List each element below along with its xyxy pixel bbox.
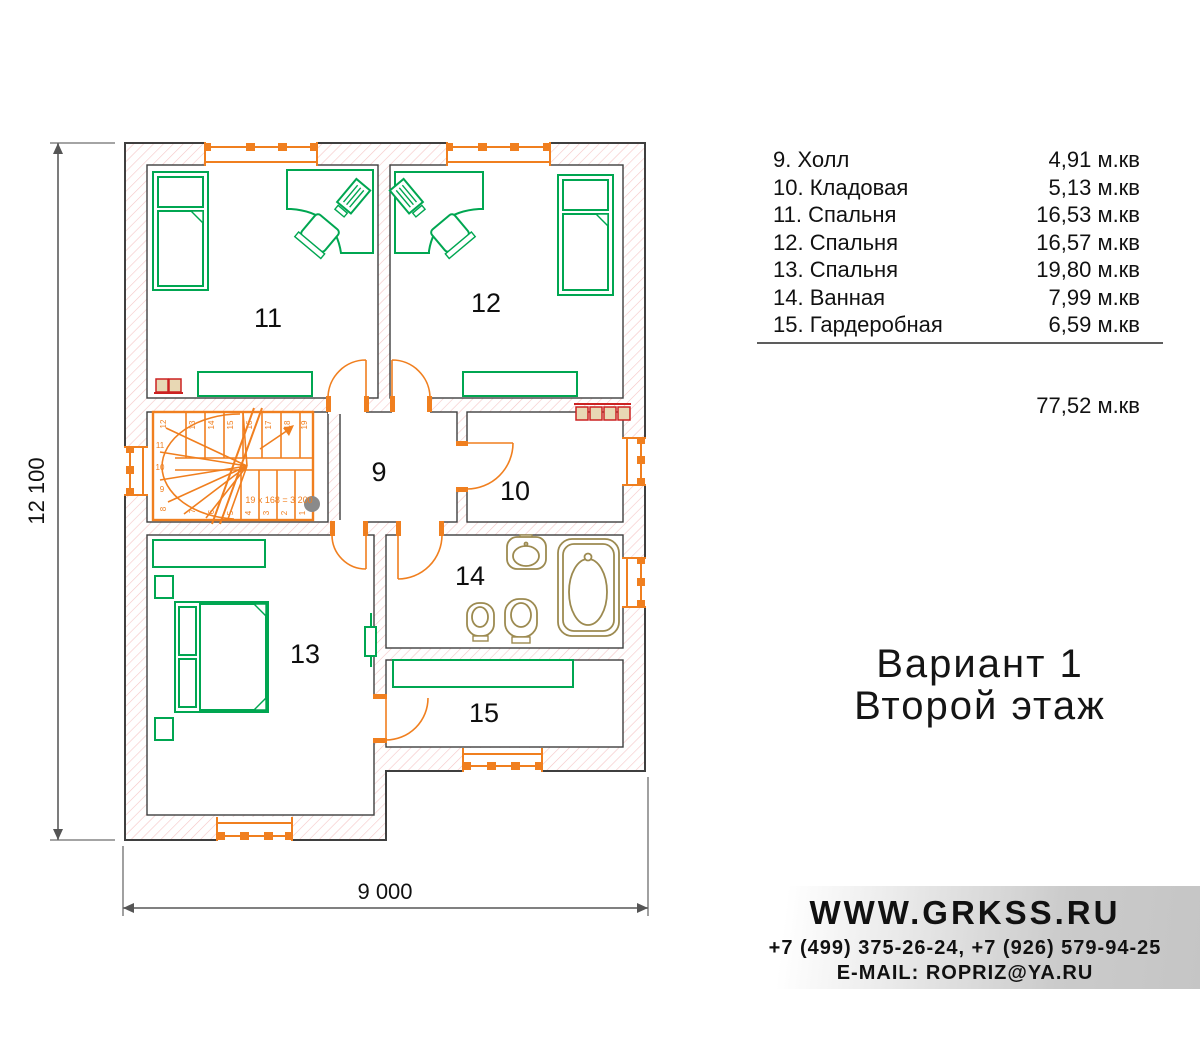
room-label-9: 9 <box>371 457 386 487</box>
room-label-13: 13 <box>290 639 320 669</box>
floor-plan: 19 x 168 = 3 200 1 2 3 4 5 6 7 8 9 10 11… <box>0 0 720 1050</box>
svg-text:8: 8 <box>159 506 168 511</box>
svg-text:14: 14 <box>207 420 216 429</box>
svg-text:17: 17 <box>264 420 273 429</box>
bed-room12 <box>558 175 613 295</box>
svg-text:6: 6 <box>207 509 216 514</box>
window-bottom-room15 <box>462 748 543 772</box>
svg-text:19: 19 <box>300 420 309 429</box>
legend-room-area: 6,59 м.кв <box>1049 311 1140 339</box>
wardrobe-room15 <box>393 660 573 687</box>
room-label-12: 12 <box>471 288 501 318</box>
svg-text:16: 16 <box>245 420 254 429</box>
room-label-14: 14 <box>455 561 485 591</box>
legend-room-area: 16,53 м.кв <box>1036 201 1140 229</box>
nightstand-top <box>155 576 173 598</box>
legend-row: 10. Кладовая5,13 м.кв <box>773 174 1140 202</box>
legend-room-area: 7,99 м.кв <box>1049 284 1140 312</box>
legend-room-name: 11. Спальня <box>773 201 896 229</box>
svg-text:2: 2 <box>280 510 289 515</box>
sink <box>507 535 546 569</box>
room-label-10: 10 <box>500 476 530 506</box>
legend-room-area: 19,80 м.кв <box>1036 256 1140 284</box>
svg-text:4: 4 <box>244 510 253 515</box>
svg-text:5: 5 <box>226 510 235 515</box>
svg-text:7: 7 <box>188 508 197 513</box>
plan-title-line2: Второй этаж <box>755 685 1200 727</box>
room-label-11: 11 <box>254 303 282 333</box>
legend-total-area: 77,52 м.кв <box>773 393 1140 419</box>
radiator-room11 <box>154 379 183 393</box>
email-text: E-MAIL: ROPRIZ@YA.RU <box>837 962 1094 985</box>
svg-text:11: 11 <box>156 441 165 450</box>
website-text: WWW.GRKSS.RU <box>810 894 1121 932</box>
legend-row: 11. Спальня16,53 м.кв <box>773 201 1140 229</box>
svg-text:15: 15 <box>226 420 235 429</box>
legend-room-name: 9. Холл <box>773 146 849 174</box>
svg-text:9: 9 <box>160 485 165 494</box>
legend-room-name: 10. Кладовая <box>773 174 908 202</box>
svg-text:1: 1 <box>298 510 307 515</box>
legend-room-area: 5,13 м.кв <box>1049 174 1140 202</box>
plan-title-line1: Вариант 1 <box>755 643 1200 685</box>
legend-row: 13. Спальня19,80 м.кв <box>773 256 1140 284</box>
legend-row: 14. Ванная7,99 м.кв <box>773 284 1140 312</box>
svg-text:3: 3 <box>262 510 271 515</box>
legend-room-name: 13. Спальня <box>773 256 898 284</box>
legend-room-name: 15. Гардеробная <box>773 311 943 339</box>
svg-text:12: 12 <box>159 419 168 428</box>
room-label-15: 15 <box>469 698 499 728</box>
nightstand-bottom <box>155 718 173 740</box>
bed-room11 <box>153 172 208 290</box>
svg-text:13: 13 <box>188 420 197 429</box>
window-bottom-room13 <box>216 817 293 841</box>
stair-formula: 19 x 168 = 3 200 <box>245 495 312 505</box>
page: 19 x 168 = 3 200 1 2 3 4 5 6 7 8 9 10 11… <box>0 0 1200 1050</box>
room-9-floor <box>340 412 457 522</box>
svg-text:10: 10 <box>156 463 165 472</box>
window-right-room10 <box>622 437 646 486</box>
window-top-room12 <box>446 142 551 166</box>
window-right-room14 <box>622 557 646 608</box>
legend-room-name: 12. Спальня <box>773 229 898 257</box>
legend-row: 12. Спальня16,57 м.кв <box>773 229 1140 257</box>
dimension-height-label: 12 100 <box>24 457 49 524</box>
legend-divider <box>757 342 1163 344</box>
phone-numbers: +7 (499) 375-26-24, +7 (926) 579-94-25 <box>769 937 1162 960</box>
bathtub <box>558 539 619 636</box>
window-left-stair <box>124 446 148 496</box>
legend-room-name: 14. Ванная <box>773 284 885 312</box>
legend-row: 9. Холл4,91 м.кв <box>773 146 1140 174</box>
legend-room-area: 16,57 м.кв <box>1036 229 1140 257</box>
wardrobe-room11 <box>198 372 312 396</box>
wardrobe-room12 <box>463 372 577 396</box>
room-legend: 9. Холл4,91 м.кв 10. Кладовая5,13 м.кв 1… <box>773 146 1140 339</box>
legend-room-area: 4,91 м.кв <box>1049 146 1140 174</box>
radiator-room10 <box>574 404 631 420</box>
svg-text:18: 18 <box>283 420 292 429</box>
dimension-width-label: 9 000 <box>357 879 412 904</box>
legend-row: 15. Гардеробная6,59 м.кв <box>773 311 1140 339</box>
window-top-room11 <box>204 142 318 166</box>
wardrobe-room13 <box>153 540 265 567</box>
plan-title: Вариант 1 Второй этаж <box>755 643 1200 727</box>
room-10-floor <box>467 412 623 522</box>
contact-banner: WWW.GRKSS.RU +7 (499) 375-26-24, +7 (926… <box>730 886 1200 989</box>
